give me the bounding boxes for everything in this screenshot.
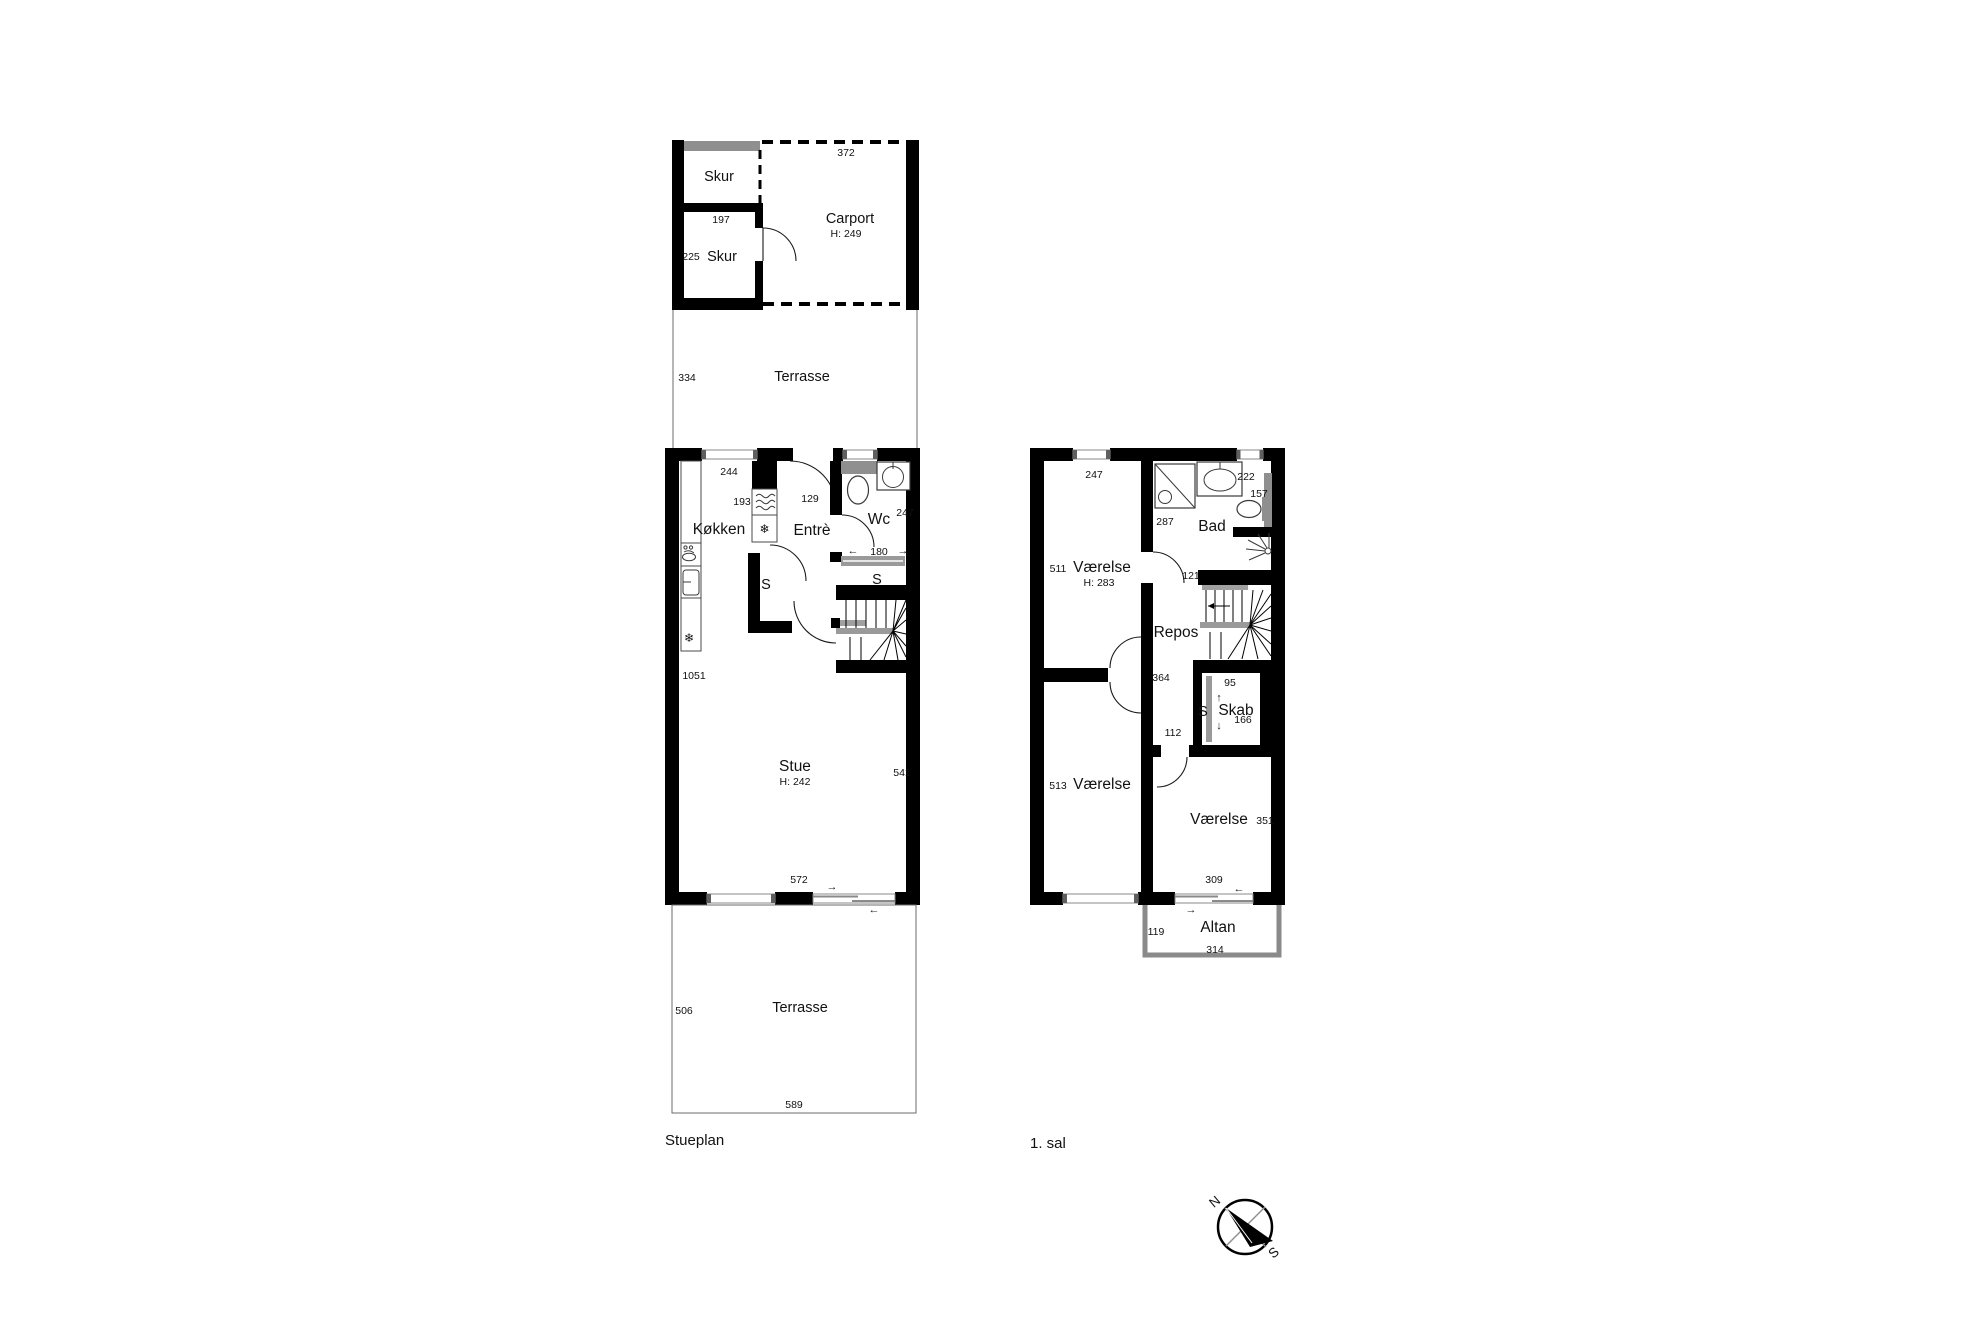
stue-width-dim: 572 bbox=[790, 874, 808, 886]
bad-dim: 287 bbox=[1156, 516, 1174, 528]
water-waves-icon bbox=[756, 494, 775, 510]
ff-wall-top-seg bbox=[1263, 448, 1285, 461]
wc-closet-label: S bbox=[872, 572, 882, 588]
skur-upper-width-dim: 197 bbox=[712, 214, 730, 226]
altan-label: Altan bbox=[1200, 919, 1235, 936]
terrace-lower-width-dim: 589 bbox=[785, 1099, 803, 1111]
house-wall-top-seg bbox=[665, 448, 702, 461]
plan-title-ground: Stueplan bbox=[665, 1132, 724, 1149]
ff-stair-sill bbox=[1202, 585, 1248, 590]
bad-door-dim: 121 bbox=[1182, 570, 1200, 582]
ff-window-bad bbox=[1237, 450, 1263, 459]
washing-machine-box bbox=[752, 489, 777, 515]
arrow-left-icon: ← bbox=[848, 545, 859, 557]
outbuilding-skur-carport: Skur 197 225 Skur 372 Carport H: 249 bbox=[672, 140, 919, 310]
skab-dim: 166 bbox=[1234, 714, 1252, 726]
house-depth-dim: 1051 bbox=[682, 670, 706, 682]
room-se-door-arc bbox=[1157, 757, 1187, 787]
stue-height-dim: H: 242 bbox=[780, 776, 811, 788]
skur-wall-top-gray bbox=[684, 141, 760, 151]
ff-wall-rooms-west bbox=[1030, 668, 1108, 682]
fridge-snowflake-icon: ❄ bbox=[684, 631, 694, 645]
entre-closet-door-arc bbox=[770, 545, 806, 581]
ff-wall-repos-south-seg bbox=[1151, 745, 1161, 757]
appliance-column: ❄ bbox=[752, 461, 777, 542]
ff-sliding-door-se bbox=[1175, 894, 1253, 903]
carport-label: Carport bbox=[826, 211, 874, 227]
repos-label: Repos bbox=[1154, 624, 1199, 641]
carport-width-dim: 372 bbox=[837, 147, 855, 159]
compass-north-label: N bbox=[1206, 1193, 1223, 1211]
ff-wall-center-vertical bbox=[1141, 583, 1153, 905]
house-wall-bottom-seg bbox=[895, 892, 920, 905]
room-sw-door-arc bbox=[1110, 682, 1141, 713]
arrow-left-icon: ← bbox=[1234, 883, 1245, 895]
kitchen-dim: 193 bbox=[733, 496, 751, 508]
stair-bottom-wall bbox=[836, 660, 920, 673]
terrace-lower: 506 Terrasse 589 bbox=[672, 905, 916, 1113]
ff-skab-east-wall bbox=[1260, 673, 1271, 745]
ff-wall-bad-jog bbox=[1233, 527, 1271, 537]
entre-closet bbox=[748, 545, 806, 633]
stue-sliding-door bbox=[813, 894, 895, 903]
bad-window-dim: 222 bbox=[1237, 471, 1255, 483]
house-wall-top-seg bbox=[833, 448, 843, 461]
skab-s-label: S bbox=[1198, 704, 1208, 720]
altan-depth-dim: 119 bbox=[1148, 926, 1165, 938]
toilet-cistern-icon bbox=[1262, 497, 1271, 521]
wc-width-dim: 180 bbox=[870, 546, 888, 558]
entre-label: Entrè bbox=[793, 522, 830, 539]
skur-carport-door-arc bbox=[763, 228, 796, 261]
ff-wall-stair-bottom bbox=[1193, 660, 1285, 673]
arrow-right-icon: → bbox=[1186, 904, 1197, 916]
room-sw-label: Værelse bbox=[1073, 776, 1131, 793]
door2-dim: 112 bbox=[1165, 727, 1182, 739]
stair-handrail bbox=[836, 628, 894, 634]
wc-dim: 247 bbox=[896, 507, 914, 519]
first-floor-plan: 247 287 Bad 222 157 511 Værelse H: 283 1… bbox=[1030, 448, 1285, 1152]
repos-dim: 364 bbox=[1152, 672, 1170, 684]
arrow-left-icon: ← bbox=[869, 904, 880, 916]
stair-entry-sill bbox=[840, 620, 866, 626]
skur-wall-divider bbox=[672, 203, 763, 212]
room-sw-dim: 513 bbox=[1049, 780, 1067, 792]
stue-door-arc bbox=[794, 601, 836, 643]
ceiling-fan-icon bbox=[1246, 533, 1271, 560]
ff-wall-repos-south-seg bbox=[1189, 745, 1285, 757]
room-nw-window-dim: 247 bbox=[1085, 469, 1103, 481]
wc-label: Wc bbox=[868, 511, 891, 528]
terrace-upper-depth-dim: 334 bbox=[678, 372, 696, 384]
skur-wall-left bbox=[672, 140, 684, 310]
wc-fixtures bbox=[841, 461, 910, 504]
arrow-right-icon: → bbox=[827, 881, 838, 893]
toilet-icon bbox=[848, 476, 869, 504]
arrow-down-icon: ↓ bbox=[1216, 720, 1222, 732]
kitchen-window bbox=[702, 450, 757, 459]
main-house-ground: ❄ ❄ bbox=[665, 448, 920, 916]
altan-width-dim: 314 bbox=[1206, 944, 1224, 956]
ff-wall-top-seg bbox=[1030, 448, 1073, 461]
carport-height-dim: H: 249 bbox=[831, 228, 862, 240]
bad-label: Bad bbox=[1198, 518, 1226, 535]
ff-wall-bad-south bbox=[1198, 570, 1285, 585]
compass-needle bbox=[1226, 1208, 1273, 1247]
terrace-upper: 334 Terrasse bbox=[673, 310, 917, 448]
stue-label: Stue bbox=[779, 758, 811, 775]
house-wall-top-seg bbox=[877, 448, 920, 461]
ff-window-sw bbox=[1063, 894, 1138, 903]
ff-wall-nw-bad bbox=[1141, 461, 1153, 552]
kitchen-sink-icon bbox=[683, 551, 696, 561]
compass-south-label: S bbox=[1265, 1244, 1282, 1261]
kitchen-window-dim: 244 bbox=[720, 466, 738, 478]
entre-wc-wall-stub bbox=[830, 552, 842, 562]
house-wall-bottom-seg bbox=[665, 892, 707, 905]
freezer-snowflake-icon: ❄ bbox=[759, 522, 769, 536]
entre-closet-label: S bbox=[761, 577, 771, 593]
terrace-upper-label: Terrasse bbox=[774, 369, 830, 385]
floorplan-drawing: Skur 197 225 Skur 372 Carport H: 249 334… bbox=[0, 0, 1984, 1323]
kitchen-label: Køkken bbox=[693, 521, 746, 538]
bad-door-arc bbox=[1153, 552, 1184, 583]
room-nw-label: Værelse bbox=[1073, 559, 1131, 576]
stairs-first bbox=[1200, 590, 1271, 659]
terrace-lower-label: Terrasse bbox=[772, 1000, 828, 1016]
terrace-lower-depth-dim: 506 bbox=[675, 1005, 693, 1017]
skur-wall-bottom bbox=[672, 298, 763, 310]
skur-lower-label: Skur bbox=[707, 249, 737, 265]
room-nw-dim: 511 bbox=[1050, 563, 1067, 575]
stue-dim: 541 bbox=[893, 767, 911, 779]
room-se-label: Værelse bbox=[1190, 811, 1248, 828]
entre-wc-wall bbox=[830, 461, 842, 515]
altan: 119 Altan 314 bbox=[1145, 905, 1279, 956]
room-nw-height-dim: H: 283 bbox=[1084, 577, 1115, 589]
room-se-dim: 351 bbox=[1256, 815, 1274, 827]
kitchen-counter: ❄ bbox=[681, 461, 701, 651]
window-se-dim: 309 bbox=[1205, 874, 1223, 886]
floorplan-page: Skur 197 225 Skur 372 Carport H: 249 334… bbox=[0, 0, 1984, 1323]
entre-dim: 129 bbox=[801, 493, 819, 505]
stair-handrail bbox=[1200, 622, 1250, 628]
ff-wall-top-seg bbox=[1110, 448, 1237, 461]
stue-window-left bbox=[707, 894, 775, 903]
carport-wall-right bbox=[906, 140, 919, 310]
skur-lower-dim: 225 bbox=[682, 251, 700, 263]
skur-upper-label: Skur bbox=[704, 169, 734, 185]
cooktop-dot-icon bbox=[684, 546, 687, 549]
toilet-cistern-icon bbox=[841, 461, 878, 474]
toilet-dim: 157 bbox=[1250, 488, 1268, 500]
arrow-right-icon: → bbox=[898, 545, 909, 557]
skab-top-dim: 95 bbox=[1224, 677, 1236, 689]
skur-wall-right-upper-stub bbox=[755, 212, 763, 228]
stair-direction-arrow bbox=[1208, 603, 1230, 609]
house-wall-left bbox=[665, 448, 679, 905]
ff-wall-bottom-seg bbox=[1253, 892, 1285, 905]
cooktop-dot-icon bbox=[689, 546, 692, 549]
compass-rose: N S bbox=[1206, 1193, 1282, 1262]
ff-wall-bottom-seg bbox=[1030, 892, 1063, 905]
house-wall-bottom-seg bbox=[775, 892, 813, 905]
ff-window-nw bbox=[1073, 450, 1110, 459]
ff-wall-right bbox=[1271, 448, 1285, 905]
house-wall-top-seg bbox=[757, 448, 793, 461]
room-nw-door-arc bbox=[1110, 637, 1141, 668]
wc-window bbox=[843, 450, 877, 459]
stue-door-stub bbox=[831, 618, 840, 628]
plan-title-first: 1. sal bbox=[1030, 1135, 1066, 1152]
ground-floor-plan: Skur 197 225 Skur 372 Carport H: 249 334… bbox=[665, 140, 920, 1149]
toilet-icon bbox=[1237, 501, 1261, 518]
